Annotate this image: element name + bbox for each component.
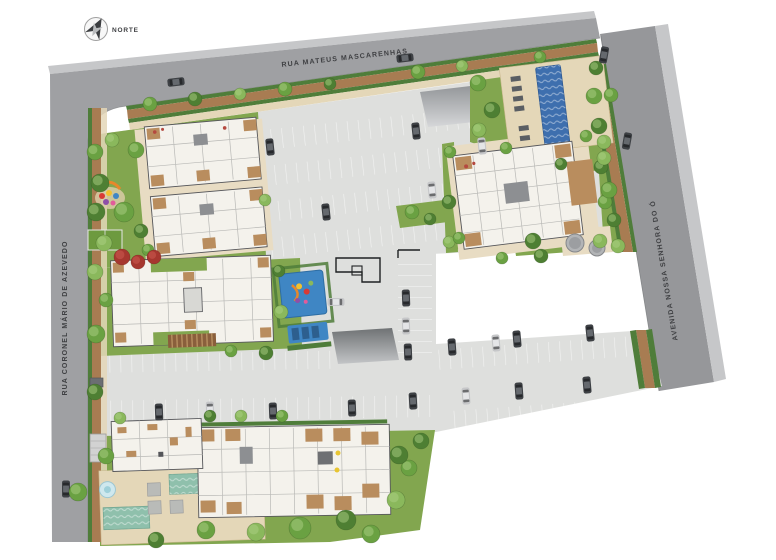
tree-icon: [134, 224, 148, 238]
tree-icon: [96, 235, 112, 251]
red-tree-icon: [131, 255, 145, 269]
tree-icon: [204, 410, 216, 422]
car-icon: [328, 298, 345, 306]
east-cluster-core: [504, 181, 530, 204]
tree-icon: [586, 88, 602, 104]
tree-icon: [555, 158, 567, 170]
red-tree-icon: [114, 249, 130, 265]
tree-icon: [424, 213, 436, 225]
garage-stall-column: [398, 258, 432, 356]
tree-icon: [289, 517, 311, 539]
tree-icon: [589, 61, 603, 75]
tree-icon: [273, 265, 285, 277]
tree-icon: [362, 525, 380, 543]
tree-icon: [114, 202, 134, 222]
tree-icon: [278, 82, 292, 96]
tree-icon: [105, 133, 119, 147]
tree-icon: [453, 232, 465, 244]
car-icon: [409, 392, 418, 409]
tree-icon: [387, 491, 405, 509]
tree-icon: [591, 118, 607, 134]
building-bottom: [197, 419, 391, 517]
left-hedge-outer: [88, 108, 92, 542]
tree-icon: [442, 195, 456, 209]
car-icon: [402, 289, 411, 306]
middle-h-core: [184, 288, 203, 313]
tree-icon: [87, 144, 103, 160]
tree-icon: [148, 532, 164, 548]
bottom-core-a: [240, 447, 253, 464]
tree-icon: [411, 65, 425, 79]
tree-icon: [225, 345, 237, 357]
tree-icon: [235, 410, 247, 422]
tree-icon: [525, 233, 541, 249]
street-left-label: RUA CORONEL MÁRIO DE AZEVEDO: [60, 241, 69, 396]
tree-icon: [500, 142, 512, 154]
tree-icon: [597, 135, 611, 149]
tree-icon: [87, 203, 105, 221]
tree-icon: [259, 194, 271, 206]
tree-icon: [593, 234, 607, 248]
building-clubhouse: [111, 418, 203, 471]
tree-icon: [69, 483, 87, 501]
car-icon: [62, 481, 70, 498]
car-icon: [512, 330, 521, 348]
car-icon: [404, 343, 413, 360]
water-tank-icon: [566, 234, 584, 252]
clubhouse-dark-piece: [158, 452, 163, 457]
site-plan-page: NORTE RUA MATEUS MASCARENHAS RUA CORONEL…: [0, 0, 776, 560]
tree-icon: [143, 97, 157, 111]
tree-icon: [601, 182, 617, 198]
tree-icon: [470, 75, 486, 91]
car-icon: [582, 376, 591, 394]
car-icon: [491, 334, 500, 352]
tree-icon: [91, 174, 109, 192]
cluster-core-a: [193, 134, 208, 146]
tree-icon: [390, 446, 408, 464]
tree-icon: [604, 88, 618, 102]
car-icon: [447, 338, 456, 356]
tree-icon: [405, 205, 419, 219]
tree-icon: [484, 102, 500, 118]
tree-icon: [607, 213, 621, 227]
car-icon: [348, 399, 357, 416]
tree-icon: [114, 412, 126, 424]
tree-icon: [580, 130, 592, 142]
tree-icon: [128, 142, 144, 158]
tree-icon: [259, 346, 273, 360]
tree-icon: [336, 510, 356, 530]
red-tree-icon: [147, 250, 161, 264]
tree-icon: [99, 293, 113, 307]
spa-pool-lower-waves: [103, 506, 150, 530]
tree-icon: [87, 325, 105, 343]
tree-icon: [534, 249, 548, 263]
tree-icon: [274, 305, 288, 319]
tree-icon: [496, 252, 508, 264]
building-middle-h: [111, 255, 274, 347]
tree-icon: [234, 88, 246, 100]
pergola: [168, 333, 216, 348]
bottom-core-b: [318, 451, 333, 464]
cluster-core-b: [199, 203, 214, 215]
tree-icon: [472, 123, 486, 137]
car-icon: [514, 382, 523, 400]
north-label: NORTE: [112, 27, 139, 34]
car-icon: [461, 387, 470, 405]
tree-icon: [276, 410, 288, 422]
car-icon: [155, 403, 164, 420]
tree-icon: [87, 384, 103, 400]
tree-icon: [247, 523, 265, 541]
tree-icon: [444, 146, 456, 158]
tree-icon: [534, 51, 546, 63]
tree-icon: [456, 60, 468, 72]
garage-ramp: [332, 328, 399, 364]
site-plan-canvas: NORTE RUA MATEUS MASCARENHAS RUA CORONEL…: [0, 0, 776, 560]
tree-icon: [98, 448, 114, 464]
tree-icon: [597, 151, 611, 165]
tree-icon: [611, 239, 625, 253]
tree-icon: [413, 433, 429, 449]
tree-icon: [324, 78, 336, 90]
tree-icon: [197, 521, 215, 539]
compass: NORTE: [85, 15, 139, 41]
tree-icon: [87, 264, 103, 280]
car-icon: [402, 317, 411, 334]
tree-icon: [188, 92, 202, 106]
